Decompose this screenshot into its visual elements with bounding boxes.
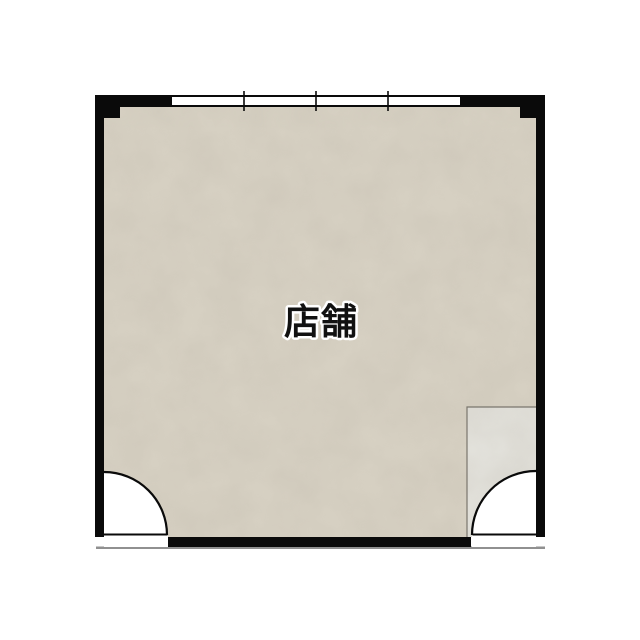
wall-right (536, 118, 545, 537)
door-opening-left (104, 536, 168, 548)
floor-plan-page: 店舗 (0, 0, 640, 640)
room-label: 店舗 (284, 302, 358, 343)
door-opening-right (472, 536, 536, 548)
wall-bottom (168, 537, 471, 547)
door-threshold-left (104, 534, 168, 536)
wall-left (95, 118, 104, 537)
floor-plan: 店舗 (0, 0, 640, 640)
door-threshold-right (473, 534, 537, 536)
